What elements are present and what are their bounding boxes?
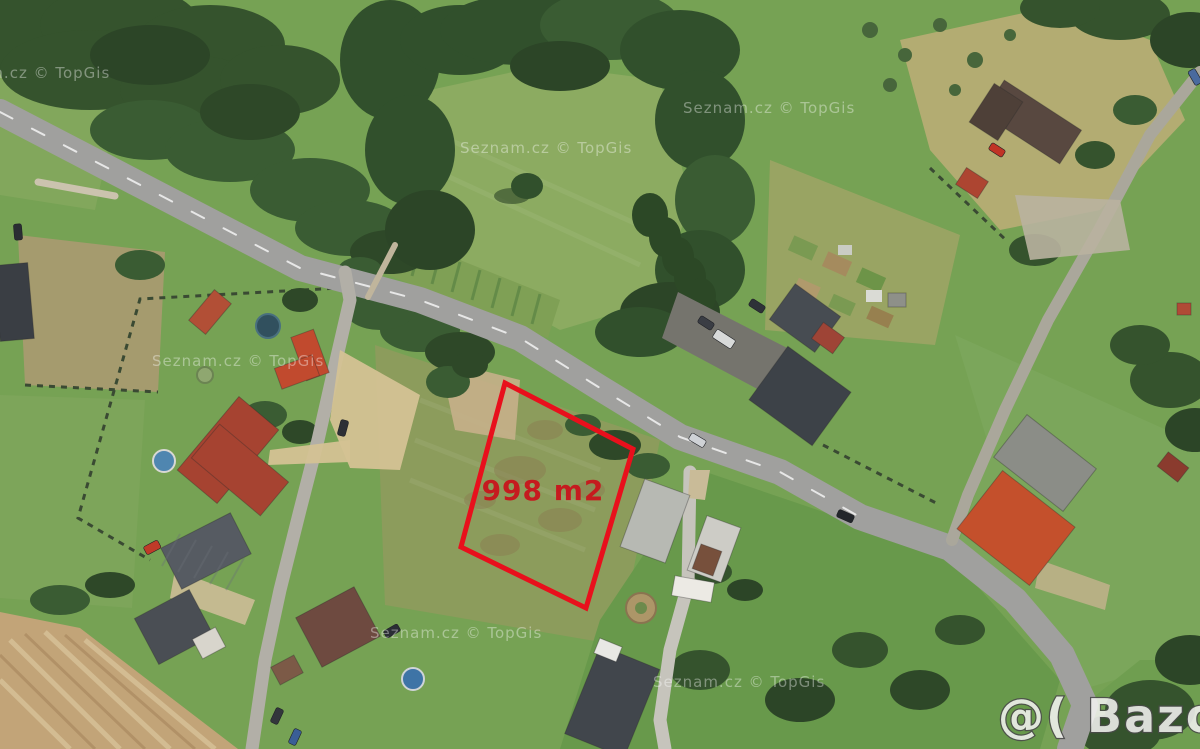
watermark-provider: Seznam.cz © TopGis [683, 99, 855, 117]
greenhouse [866, 290, 882, 302]
watermark-provider: Seznam.cz © TopGis [152, 352, 324, 370]
aerial-map: 998 m2 Seznam.cz © TopGis Seznam.cz © To… [0, 0, 1200, 749]
watermark-provider: Seznam.cz © TopGis [653, 673, 825, 691]
aerial-photo-viewport: 998 m2 Seznam.cz © TopGis Seznam.cz © To… [0, 0, 1200, 749]
garden-shed [838, 245, 852, 255]
pool-round-left [153, 450, 175, 472]
flower-bed-center [635, 602, 647, 614]
cottage-right-edge [1177, 303, 1191, 315]
watermark-provider: Seznam.cz © TopGis [460, 139, 632, 157]
watermark-provider: Seznam.cz © TopGis [370, 624, 542, 642]
shed-gray-small [888, 293, 906, 307]
watermark-provider: Seznam.cz © TopGis [0, 64, 110, 82]
plot-area-label: 998 m2 [482, 474, 605, 507]
car [13, 224, 22, 241]
site-watermark-bazos: @( Bazos.cz [998, 689, 1200, 743]
pool-round-bottom [402, 668, 424, 690]
gravel-yard-top-right [1015, 195, 1130, 260]
building-left-edge [0, 263, 34, 342]
pond-dark [256, 314, 280, 338]
